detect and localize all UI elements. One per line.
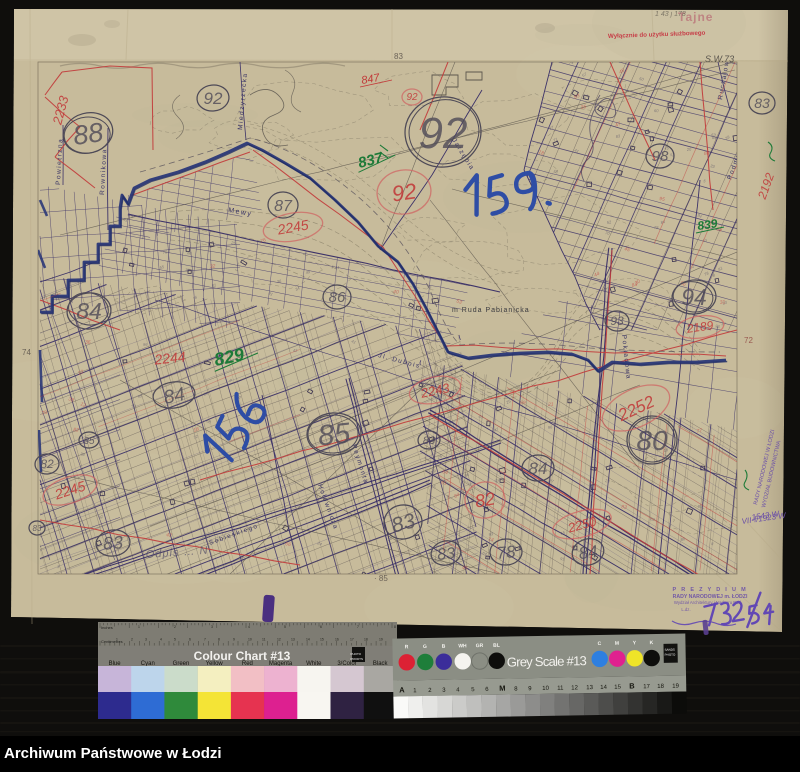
svg-text:78: 78 (496, 542, 517, 563)
svg-text:A: A (399, 685, 405, 694)
svg-text:88: 88 (704, 151, 710, 157)
svg-text:14: 14 (306, 638, 310, 642)
svg-text:12: 12 (277, 638, 281, 642)
svg-text:93: 93 (610, 314, 624, 328)
svg-text:PHOTO: PHOTO (351, 652, 362, 656)
svg-text:87: 87 (274, 198, 293, 215)
svg-text:72: 72 (744, 336, 753, 345)
svg-text:PHOTO: PHOTO (665, 653, 676, 657)
svg-text:6: 6 (320, 625, 322, 629)
svg-text:R: R (405, 644, 409, 650)
svg-text:K: K (650, 640, 654, 646)
svg-text:14: 14 (600, 685, 607, 691)
svg-text:C: C (598, 641, 602, 647)
svg-text:SANDS: SANDS (665, 648, 675, 652)
svg-text:16: 16 (335, 638, 339, 642)
svg-text:18: 18 (364, 638, 368, 642)
svg-text:1: 1 (116, 638, 118, 642)
svg-text:94: 94 (681, 284, 707, 310)
svg-text:13: 13 (291, 638, 295, 642)
svg-text:3: 3 (145, 638, 147, 642)
svg-text:21: 21 (547, 402, 554, 408)
svg-text:G: G (423, 644, 427, 650)
svg-text:1 43 j 178: 1 43 j 178 (655, 11, 686, 18)
svg-text:92: 92 (204, 89, 223, 108)
svg-text:84: 84 (162, 384, 187, 409)
svg-text:11: 11 (519, 501, 524, 507)
svg-text:15: 15 (320, 638, 324, 642)
svg-text:98: 98 (652, 148, 669, 165)
svg-text:83: 83 (436, 545, 456, 564)
svg-text:86: 86 (329, 289, 346, 306)
svg-text:5: 5 (284, 625, 286, 629)
svg-text:91: 91 (560, 556, 565, 562)
svg-text:13: 13 (586, 685, 593, 691)
svg-text:82: 82 (73, 427, 80, 434)
svg-text:· 85: · 85 (374, 574, 388, 583)
svg-text:3: 3 (211, 625, 213, 629)
svg-text:84: 84 (76, 298, 102, 324)
svg-text:Wydział Architektury i Nadzoru: Wydział Architektury i Nadzoru Bud. (674, 600, 742, 605)
svg-text:11: 11 (557, 686, 564, 692)
svg-text:P R E Z Y D I U M: P R E Z Y D I U M (673, 587, 748, 593)
svg-text:Grey Scale #13: Grey Scale #13 (507, 653, 587, 669)
svg-text:Archiwum Państwowe w Łodzi: Archiwum Państwowe w Łodzi (4, 745, 222, 762)
svg-text:8: 8 (394, 625, 396, 629)
svg-text:32: 32 (210, 264, 216, 270)
svg-text:4: 4 (248, 625, 250, 629)
svg-text:15: 15 (614, 685, 621, 691)
svg-text:5: 5 (174, 638, 176, 642)
svg-text:12: 12 (571, 685, 578, 691)
svg-text:17: 17 (350, 638, 354, 642)
svg-text:69: 69 (520, 400, 526, 406)
svg-text:m Ruda Pabianicka: m Ruda Pabianicka (452, 307, 530, 314)
svg-text:M: M (499, 684, 505, 693)
svg-text:18: 18 (657, 684, 664, 690)
svg-text:GR: GR (476, 643, 484, 649)
svg-text:36: 36 (85, 340, 91, 346)
svg-text:2244: 2244 (153, 348, 187, 367)
svg-text:M: M (615, 641, 619, 647)
svg-text:82: 82 (473, 488, 496, 511)
svg-text:19: 19 (379, 638, 383, 642)
svg-text:83: 83 (102, 532, 124, 554)
svg-text:Centimetres: Centimetres (101, 639, 123, 644)
svg-text:85: 85 (316, 417, 352, 452)
svg-text:4: 4 (160, 638, 162, 642)
svg-text:92: 92 (419, 109, 468, 158)
svg-text:85: 85 (83, 436, 95, 447)
svg-text:11: 11 (262, 638, 266, 642)
svg-text:74: 74 (488, 537, 494, 543)
svg-text:92: 92 (390, 178, 418, 206)
svg-text:19: 19 (672, 684, 679, 690)
svg-text:83: 83 (423, 435, 436, 447)
svg-text:9: 9 (233, 638, 235, 642)
svg-text:Inches: Inches (101, 625, 113, 630)
svg-text:45: 45 (462, 565, 468, 571)
svg-text:6: 6 (189, 638, 191, 642)
svg-text:92: 92 (406, 92, 418, 103)
svg-text:84: 84 (577, 542, 598, 563)
svg-text:10: 10 (542, 686, 549, 692)
svg-text:L.dz.: L.dz. (681, 607, 690, 612)
svg-text:BL: BL (493, 643, 500, 649)
svg-text:2: 2 (131, 638, 133, 642)
svg-text:WH: WH (458, 643, 467, 649)
svg-text:7: 7 (357, 625, 359, 629)
svg-text:7: 7 (204, 638, 206, 642)
svg-text:80: 80 (636, 425, 668, 456)
svg-text:83: 83 (394, 52, 403, 61)
svg-text:1: 1 (138, 625, 140, 629)
svg-text:40: 40 (393, 289, 399, 296)
svg-text:B: B (442, 644, 446, 650)
svg-text:83: 83 (33, 524, 42, 533)
svg-text:82: 82 (40, 457, 54, 471)
svg-text:81: 81 (211, 282, 216, 288)
svg-text:S.W.73: S.W.73 (705, 54, 734, 64)
svg-text:61: 61 (441, 480, 447, 487)
svg-text:88: 88 (71, 117, 105, 151)
svg-text:10: 10 (248, 638, 252, 642)
svg-text:8: 8 (218, 638, 220, 642)
svg-text:41: 41 (335, 265, 340, 270)
svg-text:17: 17 (643, 684, 650, 690)
svg-text:83: 83 (754, 95, 770, 111)
svg-text:31: 31 (719, 299, 726, 306)
svg-text:84: 84 (529, 459, 548, 478)
svg-text:2: 2 (174, 625, 176, 629)
svg-text:B: B (629, 681, 635, 690)
svg-text:74: 74 (22, 348, 31, 357)
